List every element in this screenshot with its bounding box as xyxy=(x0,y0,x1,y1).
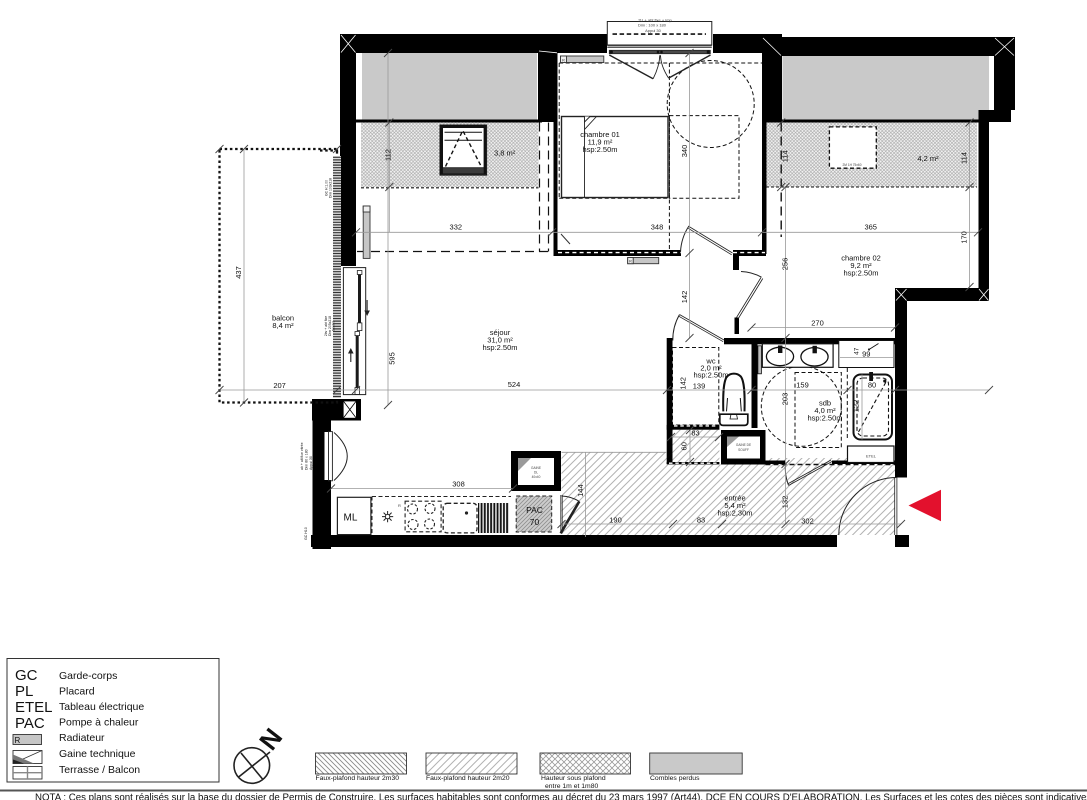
svg-text:332: 332 xyxy=(450,223,463,232)
svg-text:hsp:2.50m: hsp:2.50m xyxy=(843,269,878,278)
svg-text:Terrasse / Balcon: Terrasse / Balcon xyxy=(59,764,140,776)
svg-text:207: 207 xyxy=(273,381,286,390)
svg-text:114: 114 xyxy=(781,150,790,162)
svg-text:83: 83 xyxy=(697,516,705,525)
svg-text:308: 308 xyxy=(452,480,465,489)
svg-text:80: 80 xyxy=(868,381,876,390)
svg-text:hsp:2.50m: hsp:2.50m xyxy=(582,145,617,154)
svg-text:2M 1H 75x60: 2M 1H 75x60 xyxy=(843,163,862,167)
svg-text:437: 437 xyxy=(234,266,243,279)
svg-text:203: 203 xyxy=(781,393,790,406)
svg-text:R: R xyxy=(398,503,401,508)
svg-text:Appui 30: Appui 30 xyxy=(309,456,313,470)
svg-text:190: 190 xyxy=(609,516,622,525)
svg-text:GAINE: GAINE xyxy=(531,466,541,470)
svg-text:ETEL: ETEL xyxy=(866,454,877,459)
svg-text:ETEL: ETEL xyxy=(15,699,53,716)
svg-text:GC H10: GC H10 xyxy=(304,527,308,540)
svg-text:Dim 103x218: Dim 103x218 xyxy=(329,178,333,198)
svg-text:Faux-plafond hauteur 2m20: Faux-plafond hauteur 2m20 xyxy=(426,775,510,782)
svg-text:3,8 m²: 3,8 m² xyxy=(494,149,516,158)
svg-text:ab + alt fixe vitrée: ab + alt fixe vitrée xyxy=(300,442,304,470)
svg-text:Garde-corps: Garde-corps xyxy=(59,670,117,682)
svg-text:ML: ML xyxy=(344,513,358,524)
svg-text:Hauteur sous plafond: Hauteur sous plafond xyxy=(541,775,606,782)
svg-text:R: R xyxy=(562,58,565,63)
svg-text:DL: DL xyxy=(534,471,538,475)
svg-text:GAINE DE: GAINE DE xyxy=(736,443,751,447)
svg-text:Tableau électrique: Tableau électrique xyxy=(59,701,144,713)
svg-text:PAC: PAC xyxy=(526,505,543,515)
svg-text:340: 340 xyxy=(680,145,689,158)
svg-text:R: R xyxy=(15,736,21,745)
svg-text:hsp:2.50m: hsp:2.50m xyxy=(807,414,842,423)
svg-text:142: 142 xyxy=(679,377,688,390)
svg-text:NOTA : Ces plans sont réalisés: NOTA : Ces plans sont réalisés sur la ba… xyxy=(35,792,1087,800)
svg-text:270: 270 xyxy=(811,319,824,328)
svg-text:112: 112 xyxy=(384,149,393,161)
svg-text:99: 99 xyxy=(862,350,870,359)
svg-text:524: 524 xyxy=(508,380,521,389)
svg-text:159: 159 xyxy=(796,381,809,390)
svg-text:139: 139 xyxy=(693,382,706,391)
svg-text:83: 83 xyxy=(691,429,699,438)
svg-text:144: 144 xyxy=(576,484,585,497)
svg-text:hsp:2.50m: hsp:2.50m xyxy=(482,343,517,352)
svg-text:Dim : 100 x 180: Dim : 100 x 180 xyxy=(638,23,667,28)
svg-text:SOUFF: SOUFF xyxy=(738,448,749,452)
svg-text:Dim 80 x 180: Dim 80 x 180 xyxy=(305,449,309,470)
svg-text:Seuil 0: Seuil 0 xyxy=(332,321,336,331)
svg-text:122: 122 xyxy=(852,400,861,413)
svg-text:132: 132 xyxy=(781,496,790,509)
svg-text:hsp:2,30m: hsp:2,30m xyxy=(717,509,752,518)
svg-text:Faux-plafond hauteur 2m30: Faux-plafond hauteur 2m30 xyxy=(316,775,400,782)
svg-text:47: 47 xyxy=(854,347,861,355)
svg-text:Placard: Placard xyxy=(59,686,95,698)
svg-text:170: 170 xyxy=(960,231,969,244)
svg-text:4,2 m²: 4,2 m² xyxy=(917,154,939,163)
svg-text:256: 256 xyxy=(781,258,790,271)
svg-text:Pompe à chaleur: Pompe à chaleur xyxy=(59,717,139,729)
svg-text:8,4 m²: 8,4 m² xyxy=(272,321,294,330)
svg-text:Combles perdus: Combles perdus xyxy=(650,775,700,782)
svg-text:2U + abt fixe + imp: 2U + abt fixe + imp xyxy=(638,17,672,22)
svg-text:348: 348 xyxy=(651,223,664,232)
svg-text:PL: PL xyxy=(15,683,33,700)
svg-text:PAC: PAC xyxy=(15,715,45,732)
svg-text:114: 114 xyxy=(960,152,969,164)
svg-text:entre 1m et 1m80: entre 1m et 1m80 xyxy=(545,783,598,790)
svg-text:GC: GC xyxy=(15,667,38,684)
svg-text:Appui 30: Appui 30 xyxy=(645,28,662,33)
svg-text:R: R xyxy=(629,259,632,264)
svg-text:60: 60 xyxy=(680,442,689,450)
svg-text:595: 595 xyxy=(388,352,397,365)
svg-text:Gaine technique: Gaine technique xyxy=(59,748,136,760)
svg-text:40x40: 40x40 xyxy=(532,475,541,479)
svg-text:302: 302 xyxy=(801,517,814,526)
svg-text:365: 365 xyxy=(864,223,877,232)
svg-text:142: 142 xyxy=(680,291,689,304)
svg-text:Radiateur: Radiateur xyxy=(59,732,105,744)
svg-text:70: 70 xyxy=(530,517,540,527)
svg-text:hsp:2.50m: hsp:2.50m xyxy=(693,371,728,380)
